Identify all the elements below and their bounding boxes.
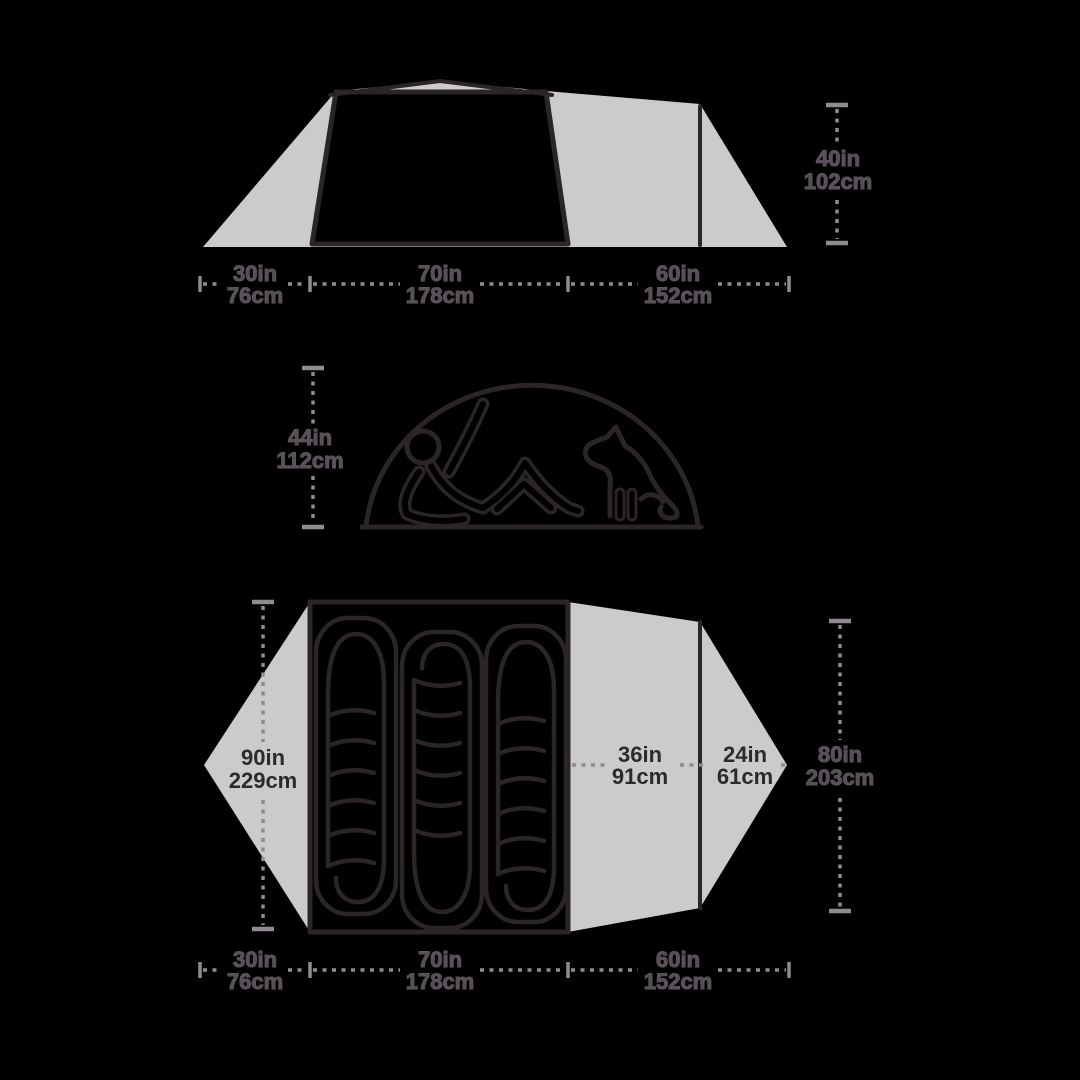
floor-plan-diagram: 36in 91cm 24in 61cm 90in 229cm 80in 203c… — [200, 602, 874, 994]
person-head — [407, 431, 439, 463]
dim-label-floor-front-vestibule-cm: 76cm — [227, 969, 283, 994]
dim-label-rear-vestibule-cm: 152cm — [644, 283, 713, 308]
dim-label-front-vestibule-cm: 76cm — [227, 283, 283, 308]
dim-label-vestibule-depth-cm: 61cm — [717, 764, 773, 789]
dim-label-side-height-cm: 102cm — [804, 169, 873, 194]
dim-label-inner-width-cm: 91cm — [612, 764, 668, 789]
dimension-side-base: 30in 76cm 70in 178cm 60in 152cm — [200, 261, 789, 308]
dimension-floor-total-width: 80in 203cm — [806, 621, 875, 911]
dog-chest-outline — [589, 461, 610, 516]
tent-body-outline — [312, 92, 568, 244]
side-view-diagram: 40in 102cm 30in 76cm 70in 178cm 60in 152… — [200, 81, 872, 308]
dome-outline — [366, 385, 698, 526]
dim-label-floor-length-cm: 229cm — [229, 768, 298, 793]
dim-label-floor-body-length-cm: 178cm — [406, 969, 475, 994]
sitting-dog-icon — [585, 427, 677, 518]
diagram-svg: 40in 102cm 30in 76cm 70in 178cm 60in 152… — [0, 0, 1080, 1080]
tent-floor-outline — [310, 602, 568, 932]
dim-label-body-length-cm: 178cm — [406, 283, 475, 308]
dim-label-side-height-in: 40in — [816, 146, 860, 171]
dim-label-interior-height-in: 44in — [288, 425, 332, 450]
dimension-interior-height: 44in 112cm — [276, 368, 343, 527]
dim-label-floor-rear-vestibule-cm: 152cm — [644, 969, 713, 994]
dim-label-total-width-cm: 203cm — [806, 765, 875, 790]
dog-haunch-line — [641, 495, 663, 502]
dimension-side-height: 40in 102cm — [804, 105, 873, 243]
dim-label-total-width-in: 80in — [818, 742, 862, 767]
dimension-floor-base: 30in 76cm 70in 178cm 60in 152cm — [200, 947, 789, 994]
interior-profile-diagram: 44in 112cm — [276, 368, 701, 527]
tent-dimensions-diagram: 40in 102cm 30in 76cm 70in 178cm 60in 152… — [0, 0, 1080, 1080]
reclining-person-icon — [405, 404, 578, 521]
dim-label-floor-length-in: 90in — [241, 745, 285, 770]
dim-label-interior-height-cm: 112cm — [276, 448, 343, 473]
